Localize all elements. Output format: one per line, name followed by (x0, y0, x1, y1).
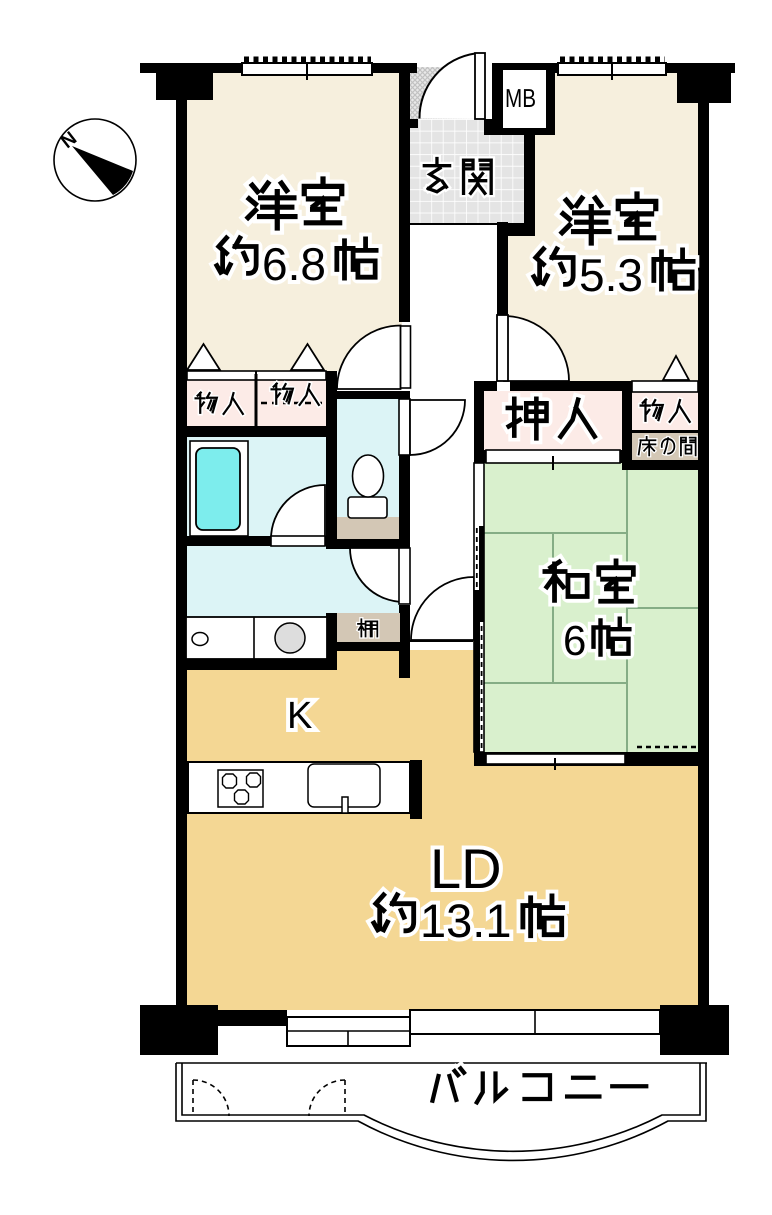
svg-text:5.3: 5.3 (579, 249, 643, 301)
svg-text:MB: MB (505, 83, 536, 113)
svg-text:K: K (287, 695, 312, 737)
svg-text:LD: LD (430, 837, 502, 900)
svg-text:13.1: 13.1 (420, 894, 511, 947)
svg-text:6.8: 6.8 (262, 238, 326, 290)
svg-text:6: 6 (563, 617, 586, 664)
